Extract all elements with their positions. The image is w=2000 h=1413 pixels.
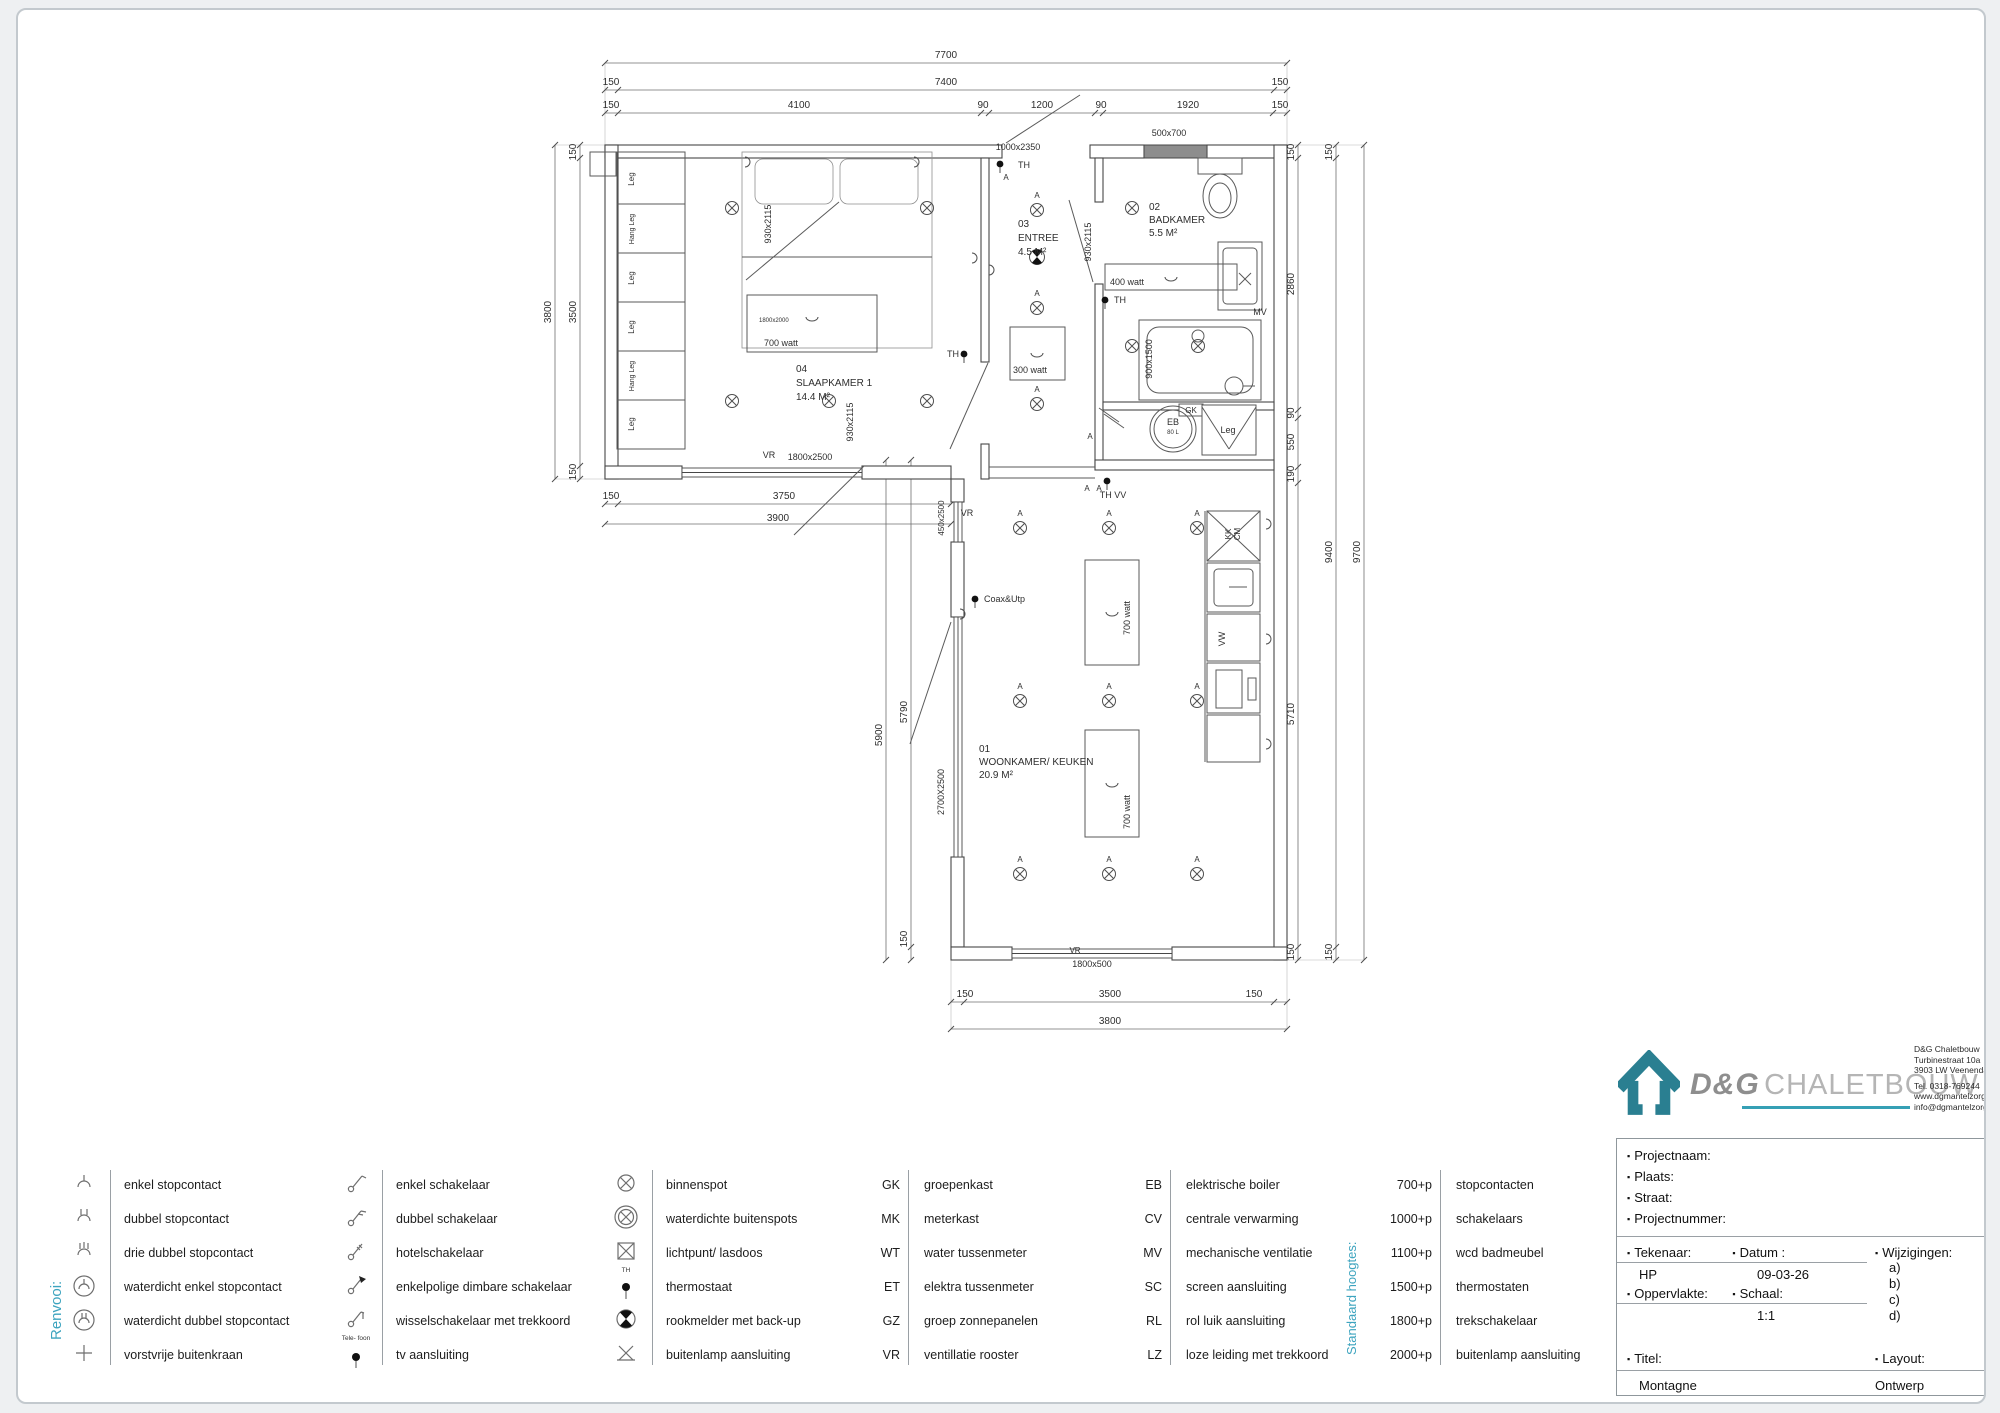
- plan-label: TH: [947, 349, 959, 359]
- wall: [1172, 947, 1287, 960]
- plan-label: 3800: [543, 300, 554, 323]
- legend-abbrev-row: 1000+pschakelaars: [1374, 1202, 1624, 1236]
- legend-label: groep zonnepanelen: [910, 1314, 1038, 1328]
- wall: [951, 857, 964, 947]
- legend-label: rol luik aansluiting: [1172, 1314, 1285, 1328]
- plan-label: 150: [957, 989, 974, 1000]
- sw2-icon: [343, 1204, 369, 1230]
- legend-label: rookmelder met back-up: [652, 1314, 801, 1328]
- legend-abbrev: 2000+p: [1374, 1348, 1442, 1362]
- legend-label: trekschakelaar: [1442, 1314, 1537, 1328]
- legend-label: elektrische boiler: [1172, 1178, 1280, 1192]
- plan-label: A: [1087, 432, 1093, 441]
- smoke-icon: [613, 1306, 639, 1332]
- plan-label: 7700: [935, 50, 958, 61]
- plan-label: 150: [568, 463, 579, 480]
- layout-value: Ontwerp: [1875, 1378, 1924, 1393]
- plan-label: 700 watt: [1122, 600, 1132, 635]
- light-row: lichtpunt/ lasdoos: [600, 1236, 852, 1270]
- legend-label: tv aansluiting: [382, 1348, 469, 1362]
- company-address: D&G ChaletbouwTurbinestraat 10a3903 LW V…: [1914, 1044, 1986, 1112]
- plan-label: 3500: [1099, 989, 1122, 1000]
- plan-label: BADKAMER: [1149, 215, 1205, 226]
- title-block: ▪Projectnaam: ▪Plaats: ▪Straat: ▪Project…: [1616, 1138, 1986, 1396]
- legend-col-abbrev-2: EBelektrische boilerCVcentrale verwarmin…: [1126, 1168, 1372, 1373]
- legend-label: elektra tussenmeter: [910, 1280, 1034, 1294]
- legend-label: enkel schakelaar: [382, 1178, 490, 1192]
- legend-abbrev: MV: [1126, 1246, 1172, 1260]
- socket3-symbol: [58, 1238, 110, 1269]
- legend-label: drie dubbel stopcontact: [110, 1246, 253, 1260]
- brand-bold: D&G: [1690, 1068, 1760, 1101]
- plan-label: 700 watt: [764, 338, 799, 348]
- panel-wave: [1106, 783, 1118, 787]
- legend-abbrev: GK: [864, 1178, 910, 1192]
- switch-row: hotelschakelaar: [330, 1236, 592, 1270]
- swd-symbol: [330, 1272, 382, 1303]
- legend-label: meterkast: [910, 1212, 979, 1226]
- door-leaf: [950, 363, 988, 449]
- plan-label: Leg: [1220, 425, 1235, 435]
- socket-icon: [989, 265, 994, 275]
- plan-label: VR: [763, 450, 776, 460]
- legend-abbrev: 1000+p: [1374, 1212, 1442, 1226]
- wall: [862, 466, 951, 479]
- plan-label: 7400: [935, 77, 958, 88]
- legend-abbrev: LZ: [1126, 1348, 1172, 1362]
- fixture: [1147, 327, 1253, 393]
- legend-label: centrale verwarming: [1172, 1212, 1299, 1226]
- plan-label: 90: [977, 100, 989, 111]
- plan-label: 14.4 M²: [796, 392, 831, 403]
- plan-label: CM: [1233, 527, 1242, 540]
- socket-icon: [1266, 739, 1271, 749]
- spotout-icon: [613, 1204, 639, 1230]
- plan-label: Coax&Utp: [984, 594, 1025, 604]
- smoke-detector-icon: [1032, 257, 1042, 265]
- sheet: 7700150740015015041009012009019201503800…: [16, 8, 1986, 1404]
- socket-row: waterdicht enkel stopcontact: [58, 1270, 313, 1304]
- field-projectnummer: ▪Projectnummer:: [1627, 1209, 1986, 1230]
- plan-label: 3500: [568, 300, 579, 323]
- legend-abbrev: EB: [1126, 1178, 1172, 1192]
- legend-abbrev-row: 1800+ptrekschakelaar: [1374, 1304, 1624, 1338]
- plan-label: Leg: [627, 417, 636, 430]
- plan-label: 1200: [1031, 100, 1054, 111]
- spotout-symbol: [600, 1204, 652, 1235]
- fixture: [755, 159, 833, 204]
- plan-label: SLAAPKAMER 1: [796, 378, 873, 389]
- plan-label: A: [1017, 855, 1023, 864]
- socket-icon: [1266, 634, 1271, 644]
- field-plaats: ▪Plaats:: [1627, 1167, 1986, 1188]
- socket-row: drie dubbel stopcontact: [58, 1236, 313, 1270]
- plan-label: Hang Leg: [629, 361, 636, 391]
- plan-label: 9400: [1324, 540, 1335, 563]
- switch-row: enkel schakelaar: [330, 1168, 592, 1202]
- schaal-value: 1:1: [1749, 1308, 1887, 1323]
- legend-abbrev: VR: [864, 1348, 910, 1362]
- panel-wave: [1106, 612, 1118, 616]
- legend-label: enkel stopcontact: [110, 1178, 221, 1192]
- legend-abbrev: 1500+p: [1374, 1280, 1442, 1294]
- socket-row: dubbel stopcontact: [58, 1202, 313, 1236]
- plan-label: VR: [961, 508, 974, 518]
- address-line: www.dgmantelzorgwoningen.nl: [1914, 1091, 1986, 1102]
- address-line: 3903 LW Veenendaal: [1914, 1065, 1986, 1076]
- light-row: rookmelder met back-up: [600, 1304, 852, 1338]
- thermostat-icon: [997, 161, 1004, 168]
- light-row: buitenlamp aansluiting: [600, 1338, 852, 1372]
- plan-label: 150: [1272, 100, 1289, 111]
- plan-label: 02: [1149, 202, 1161, 213]
- walls: [590, 145, 1287, 960]
- legend-abbrev-row: GKgroepenkast: [864, 1168, 1106, 1202]
- legend-abbrev-row: MKmeterkast: [864, 1202, 1106, 1236]
- swp-icon: [343, 1306, 369, 1332]
- legend-label: hotelschakelaar: [382, 1246, 484, 1260]
- plan-label: A: [1194, 682, 1200, 691]
- wall: [605, 145, 618, 479]
- legend-label: mechanische ventilatie: [1172, 1246, 1312, 1260]
- legend-label: waterdicht enkel stopcontact: [110, 1280, 282, 1294]
- plan-label: GK: [1185, 406, 1197, 415]
- tv-symbol: Tele- foon: [330, 1336, 382, 1374]
- light-row: binnenspot: [600, 1168, 852, 1202]
- plan-label: 1800x2000: [759, 318, 789, 324]
- plan-label: 700 watt: [1122, 794, 1132, 829]
- tekenaar-value: HP: [1639, 1267, 1749, 1282]
- datum-value: 09-03-26: [1749, 1267, 1887, 1282]
- socket1w-icon: [71, 1272, 97, 1298]
- plan-label: Leg: [627, 320, 636, 333]
- wall: [951, 947, 1012, 960]
- plan-label: 500x700: [1152, 128, 1187, 138]
- outlamp-symbol: [600, 1340, 652, 1371]
- address-line: Tel. 0318-769244: [1914, 1081, 1986, 1092]
- wijzigingen: ▪Wijzigingen: a)b)c)d): [1875, 1245, 1986, 1324]
- switch-row: enkelpolige dimbare schakelaar: [330, 1270, 592, 1304]
- legend-abbrev-row: EBelektrische boiler: [1126, 1168, 1372, 1202]
- address-line: D&G Chaletbouw: [1914, 1044, 1986, 1055]
- switch-row: wisselschakelaar met trekkoord: [330, 1304, 592, 1338]
- plan-label: 900x1500: [1144, 339, 1154, 379]
- plan-label: 80 L: [1167, 430, 1179, 436]
- plan-label: A: [1106, 682, 1112, 691]
- plan-label: 150: [568, 143, 579, 160]
- socket2-symbol: [58, 1204, 110, 1235]
- socket1-icon: [71, 1170, 97, 1196]
- thermostat-icon: [961, 351, 968, 358]
- plan-label: 90: [1286, 407, 1297, 419]
- outlamp-icon: [613, 1340, 639, 1366]
- plan-label: 930x2115: [1083, 223, 1093, 262]
- socket1w-symbol: [58, 1272, 110, 1303]
- tekenaar-label: ▪Tekenaar:: [1627, 1245, 1732, 1260]
- plan-label: 5790: [899, 700, 910, 723]
- plan-label: 150: [603, 491, 620, 502]
- panel-wave: [1165, 277, 1177, 281]
- plan-label: Leg: [627, 172, 636, 185]
- plan-label: A: [1034, 191, 1040, 200]
- house-logo-icon: [1618, 1050, 1680, 1116]
- sw2-symbol: [330, 1204, 382, 1235]
- plan-label: 150: [603, 100, 620, 111]
- legend-abbrev: RL: [1126, 1314, 1172, 1328]
- junction-icon: [613, 1238, 639, 1264]
- plan-label: 3750: [773, 491, 796, 502]
- legend-abbrev-row: 700+pstopcontacten: [1374, 1168, 1624, 1202]
- wall: [1274, 145, 1287, 960]
- legend-label: dubbel stopcontact: [110, 1212, 229, 1226]
- plan-label: 5.5 M²: [1149, 228, 1178, 239]
- plan-label: 01: [979, 744, 991, 755]
- company-logo-block: D&G CHALETBOUW D&G ChaletbouwTurbinestra…: [1614, 1042, 1986, 1134]
- socket2-icon: [71, 1204, 97, 1230]
- legend-abbrev: GZ: [864, 1314, 910, 1328]
- toilet-bowl-inner: [1209, 183, 1231, 213]
- legend-label: wisselschakelaar met trekkoord: [382, 1314, 570, 1328]
- legend-label: buitenlamp aansluiting: [652, 1348, 790, 1362]
- legend-abbrev-row: 2000+pbuitenlamp aansluiting: [1374, 1338, 1624, 1372]
- wijziging-item: a): [1889, 1260, 1986, 1276]
- title-row: ▪Titel: ▪Layout: Montagne Ontwerp: [1617, 1341, 1986, 1393]
- wall: [1095, 158, 1103, 202]
- thermostat-icon: [1102, 297, 1109, 304]
- thermo-symbol: TH: [600, 1268, 652, 1306]
- plan-label: 1920: [1177, 100, 1200, 111]
- plan-label: A: [1003, 173, 1009, 182]
- plan-label: 4100: [788, 100, 811, 111]
- wall: [1095, 284, 1103, 467]
- shower-mixer: [1225, 377, 1243, 395]
- wijziging-item: d): [1889, 1308, 1986, 1324]
- panel-wave: [1031, 353, 1043, 357]
- socket-row: vorstvrije buitenkraan: [58, 1338, 313, 1372]
- thermo-icon: [613, 1275, 639, 1301]
- legend-label: dubbel schakelaar: [382, 1212, 497, 1226]
- plan-label: VR: [1069, 946, 1080, 955]
- legend-abbrev-row: LZloze leiding met trekkoord: [1126, 1338, 1372, 1372]
- plan-label: 20.9 M²: [979, 770, 1014, 781]
- plan-label: 150: [1324, 943, 1335, 960]
- legend-label: water tussenmeter: [910, 1246, 1027, 1260]
- boiler-inner: [1154, 410, 1192, 448]
- wall: [1090, 145, 1144, 158]
- plan-label: 1800x2500: [788, 452, 833, 462]
- wijziging-item: c): [1889, 1292, 1986, 1308]
- wijziging-item: b): [1889, 1276, 1986, 1292]
- plan-label: VW: [1217, 631, 1227, 646]
- drawing-page: { "colors": { "teal_accent": "#3da4bf", …: [0, 0, 2000, 1413]
- field-projectnaam: ▪Projectnaam:: [1627, 1146, 1986, 1167]
- plan-label: 4.5 M²: [1018, 247, 1047, 258]
- tv-icon: [343, 1343, 369, 1369]
- socket-icon: [1266, 519, 1271, 529]
- plan-label: 5900: [874, 723, 885, 746]
- plan-label: TH: [1114, 295, 1126, 305]
- address-line: info@dgmantelzorgwoningen.nl: [1914, 1102, 1986, 1113]
- legend-label: screen aansluiting: [1172, 1280, 1287, 1294]
- socket2w-icon: [71, 1306, 97, 1332]
- legend-abbrev: 700+p: [1374, 1178, 1442, 1192]
- legend-label: buitenlamp aansluiting: [1442, 1348, 1580, 1362]
- legend-label: stopcontacten: [1442, 1178, 1534, 1192]
- legend-label: thermostaten: [1442, 1280, 1529, 1294]
- wall: [981, 444, 989, 479]
- plan-label: 550: [1286, 433, 1297, 450]
- oppervlakte-label: ▪Oppervlakte:: [1627, 1286, 1732, 1301]
- fixture-line: [1104, 414, 1124, 428]
- plan-label: 04: [796, 364, 808, 375]
- switch-row: Tele- foontv aansluiting: [330, 1338, 592, 1372]
- plan-label: 300 watt: [1013, 365, 1048, 375]
- wall: [1095, 460, 1274, 470]
- legend-abbrev-row: ETelektra tussenmeter: [864, 1270, 1106, 1304]
- plan-label: A: [1194, 509, 1200, 518]
- plan-label: Leg: [627, 271, 636, 284]
- legend-abbrev-row: VRventillatie rooster: [864, 1338, 1106, 1372]
- swp-symbol: [330, 1306, 382, 1337]
- fixture-line: [746, 202, 839, 280]
- plan-label: 150: [1246, 989, 1263, 1000]
- plan-label: 930x2115: [845, 403, 855, 442]
- plan-label: EB: [1167, 417, 1179, 427]
- plan-label: 3900: [767, 513, 790, 524]
- wall: [981, 158, 989, 362]
- fixture: [1207, 715, 1260, 762]
- legend-col-switches: enkel schakelaardubbel schakelaarhotelsc…: [330, 1168, 592, 1373]
- drain: [1192, 330, 1204, 342]
- brand-underline: [1742, 1106, 1910, 1109]
- plan-label: 1800x500: [1072, 959, 1112, 969]
- plan-label: 450x2500: [937, 500, 946, 536]
- legend-col-lights: binnenspotwaterdichte buitenspotslichtpu…: [600, 1168, 852, 1373]
- socket-row: waterdicht dubbel stopcontact: [58, 1304, 313, 1338]
- legend-label: waterdichte buitenspots: [652, 1212, 797, 1226]
- fixture: [840, 159, 918, 204]
- swh-icon: [343, 1238, 369, 1264]
- plan-label: A: [1106, 855, 1112, 864]
- legend-label: vorstvrije buitenkraan: [110, 1348, 243, 1362]
- plan-label: KK: [1224, 528, 1233, 539]
- legend-label: lichtpunt/ lasdoos: [652, 1246, 763, 1260]
- junction-symbol: [600, 1238, 652, 1269]
- plan-label: TH VV: [1100, 490, 1127, 500]
- plan-label: A: [1034, 289, 1040, 298]
- legend-abbrev-row: 1100+pwcd badmeubel: [1374, 1236, 1624, 1270]
- plan-label: A: [1106, 509, 1112, 518]
- legend-label: ventillatie rooster: [910, 1348, 1019, 1362]
- wall: [951, 542, 964, 617]
- thermostat-icon: [1104, 478, 1111, 485]
- legend-col-abbrev-1: GKgroepenkastMKmeterkastWTwater tussenme…: [864, 1168, 1106, 1373]
- heights-title: Standaard hoogtes:: [1344, 1242, 1359, 1355]
- panel-wave: [806, 317, 818, 321]
- fixture: [1218, 242, 1262, 310]
- legend-abbrev: SC: [1126, 1280, 1172, 1294]
- legend-abbrev: 1800+p: [1374, 1314, 1442, 1328]
- plan-label: 150: [603, 77, 620, 88]
- plan-label: 9700: [1352, 540, 1363, 563]
- swh-symbol: [330, 1238, 382, 1269]
- plan-label: Hang Leg: [629, 214, 636, 244]
- fixture: [1207, 614, 1260, 661]
- socket-row: enkel stopcontact: [58, 1168, 313, 1202]
- plan-label: 2700X2500: [936, 769, 946, 815]
- legend-abbrev-row: MVmechanische ventilatie: [1126, 1236, 1372, 1270]
- plan-label: 2860: [1286, 272, 1297, 295]
- legend-abbrev-row: SCscreen aansluiting: [1126, 1270, 1372, 1304]
- plan-label: 3800: [1099, 1016, 1122, 1027]
- floor-plan: 7700150740015015041009012009019201503800…: [18, 10, 1984, 1095]
- legend-label: thermostaat: [652, 1280, 732, 1294]
- plan-label: 03: [1018, 219, 1030, 230]
- legend-abbrev: WT: [864, 1246, 910, 1260]
- titel-label: ▪Titel:: [1627, 1351, 1875, 1366]
- datum-label: ▪Datum :: [1732, 1245, 1857, 1260]
- wall: [951, 479, 964, 502]
- project-fields: ▪Projectnaam: ▪Plaats: ▪Straat: ▪Project…: [1617, 1139, 1986, 1237]
- wall: [605, 466, 682, 479]
- plan-label: A: [1034, 385, 1040, 394]
- light-row: THthermostaat: [600, 1270, 852, 1304]
- swd-icon: [343, 1272, 369, 1298]
- socket-icon: [972, 253, 977, 263]
- wijzigingen-label: ▪Wijzigingen:: [1875, 1245, 1986, 1260]
- plan-label: 5710: [1286, 702, 1297, 725]
- plan-label: 930x2115: [763, 205, 773, 244]
- plan-label: 150: [899, 930, 910, 947]
- schaal-label: ▪Schaal:: [1732, 1286, 1857, 1301]
- legend-abbrev-row: GZgroep zonnepanelen: [864, 1304, 1106, 1338]
- legend-abbrev-row: WTwater tussenmeter: [864, 1236, 1106, 1270]
- tap-symbol: [58, 1340, 110, 1371]
- sw1-icon: [343, 1170, 369, 1196]
- legend-label: schakelaars: [1442, 1212, 1523, 1226]
- plan-label: 1000x2350: [996, 142, 1041, 152]
- legend-abbrev-row: CVcentrale verwarming: [1126, 1202, 1372, 1236]
- plan-label: 190: [1286, 465, 1297, 482]
- legend-abbrev-row: 1500+pthermostaten: [1374, 1270, 1624, 1304]
- socket3-icon: [71, 1238, 97, 1264]
- socket2w-symbol: [58, 1306, 110, 1337]
- legend-abbrev: 1100+p: [1374, 1246, 1442, 1260]
- socket1-symbol: [58, 1170, 110, 1201]
- plan-label: 150: [1324, 143, 1335, 160]
- sw1-symbol: [330, 1170, 382, 1201]
- legend-label: binnenspot: [652, 1178, 727, 1192]
- smoke-symbol: [600, 1306, 652, 1337]
- legend-label: enkelpolige dimbare schakelaar: [382, 1280, 572, 1294]
- plan-label: MV: [1253, 307, 1267, 317]
- spotin-icon: [613, 1170, 639, 1196]
- address-line: Turbinestraat 10a: [1914, 1055, 1986, 1066]
- legend-abbrev: CV: [1126, 1212, 1172, 1226]
- plan-label: 150: [1272, 77, 1289, 88]
- legend-abbrev: MK: [864, 1212, 910, 1226]
- legend-label: loze leiding met trekkoord: [1172, 1348, 1328, 1362]
- plan-label: ENTREE: [1018, 233, 1059, 244]
- legend-abbrev: ET: [864, 1280, 910, 1294]
- legend-label: waterdicht dubbel stopcontact: [110, 1314, 289, 1328]
- plan-label: TH: [1018, 160, 1030, 170]
- plan-label: A: [1017, 682, 1023, 691]
- meta-fields: ▪Tekenaar: ▪Datum : HP 09-03-26 ▪Oppervl…: [1617, 1237, 1986, 1341]
- fixture: [617, 152, 685, 449]
- layout-label: ▪Layout:: [1875, 1351, 1925, 1366]
- plan-label: 150: [1286, 943, 1297, 960]
